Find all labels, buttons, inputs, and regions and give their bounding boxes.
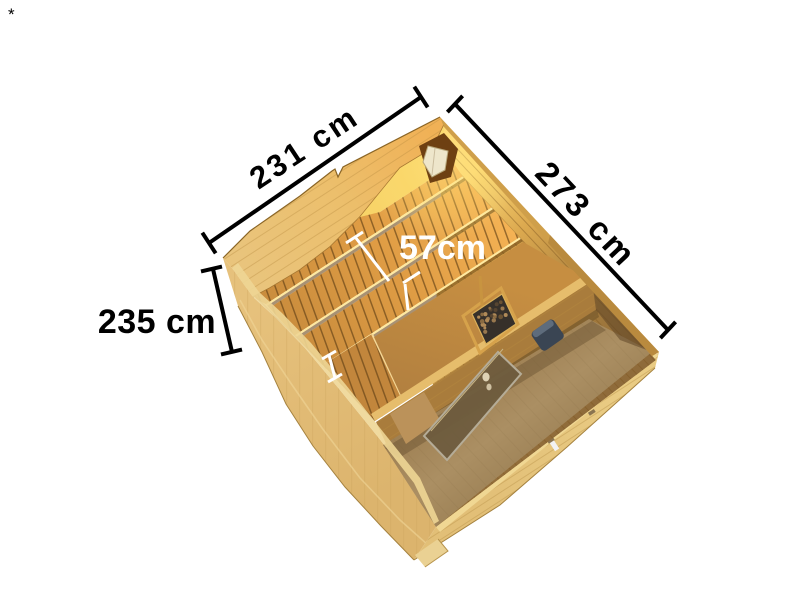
svg-text:235 cm: 235 cm — [98, 303, 216, 341]
svg-text:57cm: 57cm — [399, 229, 486, 267]
svg-text:*: * — [8, 5, 15, 24]
